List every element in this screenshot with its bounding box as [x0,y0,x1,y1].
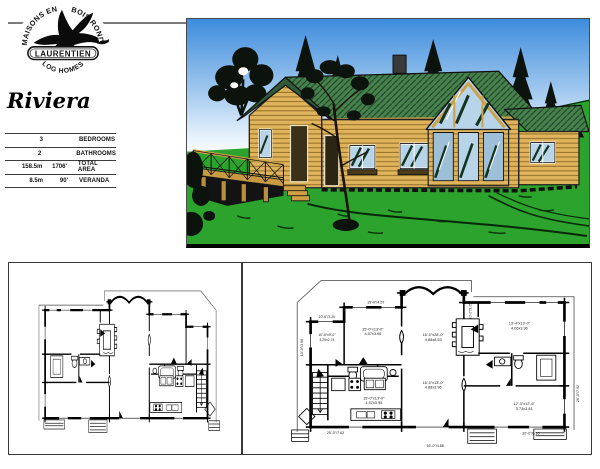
edge-dim: 10'-0"/3.05 [469,303,473,319]
house-illustration-frame [186,18,590,248]
stairs [299,372,328,424]
edge-dim: 15'-0"/4.57 [367,300,384,304]
tree-base-shrub [333,219,359,231]
right-wing-window [531,143,555,163]
spec-row-bathrooms: 2 BATHROOMS [5,148,116,162]
room-dim-label: 16'-0"x28'-0" [422,333,444,337]
spec-row-total-area: 158.5m 1706' TOTAL AREA [5,161,116,175]
floor-plan-geometry [291,280,574,443]
entry-steps [291,430,308,441]
logo-banner-text: LAURENTIEN [35,49,91,58]
room-dim-label: 13'-4"x13'-0" [509,322,531,326]
panel-divider [241,263,243,454]
chimney [393,55,406,73]
room-dim-metric: 4.88x3.96 [425,386,442,390]
left-wing-window [259,129,271,157]
room-dim-label: 15'-0"x13'-0" [362,327,384,331]
room-dim-metric: 3.20x2.74 [319,338,334,342]
spec-label: VERANDA [68,178,109,184]
floor-plan-left [31,281,221,439]
house-illustration [187,19,589,244]
mirrored-plan [39,291,220,432]
edge-dim: 25'-0"/7.62 [327,431,344,435]
brochure-page: MAISONS EN BOIS ROND LAURENTIEN LOG HOME… [0,0,600,469]
spec-value-imperial: 1706' [42,164,67,170]
edge-dim: 20'-0"/6.10 [522,432,539,436]
room-dim-label: 16'-0"x13'-0" [422,381,444,385]
edge-dim: 13'-0"/3.96 [300,339,304,356]
side-door [325,136,339,186]
rear-deck [468,429,567,443]
room-dim-label: 10'-6"x9'-0" [318,333,336,337]
spec-row-veranda: 8.5m 90' VERANDA [5,175,116,189]
fireplace [452,319,483,355]
spec-table: 3 BEDROOMS 2 BATHROOMS 158.5m 1706' TOTA… [5,133,116,188]
spec-value: 2 [5,151,41,157]
brand-logo: MAISONS EN BOIS ROND LAURENTIEN LOG HOME… [14,0,112,78]
room-dim-metric: 3.73x3.81 [516,407,533,411]
room-dim-metric: 4.57x3.95 [365,401,382,405]
room-dim-metric: 4.06x3.96 [511,326,528,330]
spec-label: BEDROOMS [68,137,115,143]
edge-dim: 10'-6"/3.20 [319,315,335,319]
edge-dim: 26'-0"/7.92 [576,385,580,402]
edge-dim: 16'-0"/4.88 [426,444,443,448]
spec-value: 3 [5,137,43,143]
flower-box [348,170,377,175]
bathroom-right [495,355,556,380]
floor-plans-panel: 10'-6"x9'-0" 3.20x2.74 15'-0"x13'-0" 4.5… [8,262,592,455]
spec-label: BATHROOMS [65,151,116,157]
flower-box [398,170,430,175]
room-dim-metric: 4.88x8.53 [425,338,442,342]
spec-value-imperial: 90' [43,178,68,184]
room-dim-label: 12'-3"x12'-6" [513,402,535,406]
spec-value: 8.5m [5,178,43,184]
spec-row-bedrooms: 3 BEDROOMS [5,134,116,148]
prow-bay [404,287,461,294]
patio-door [291,125,308,181]
floor-plan-right: 10'-6"x9'-0" 3.20x2.74 15'-0"x13'-0" 4.5… [285,269,591,451]
room-dim-metric: 4.57x3.96 [364,332,381,336]
spec-label: TOTAL AREA [67,161,116,173]
page-title: Riviera [7,88,91,113]
spec-value: 158.5m [5,164,42,170]
room-dim-label: 15'-0"x13'-0" [363,396,385,400]
main-window-2 [398,144,430,175]
